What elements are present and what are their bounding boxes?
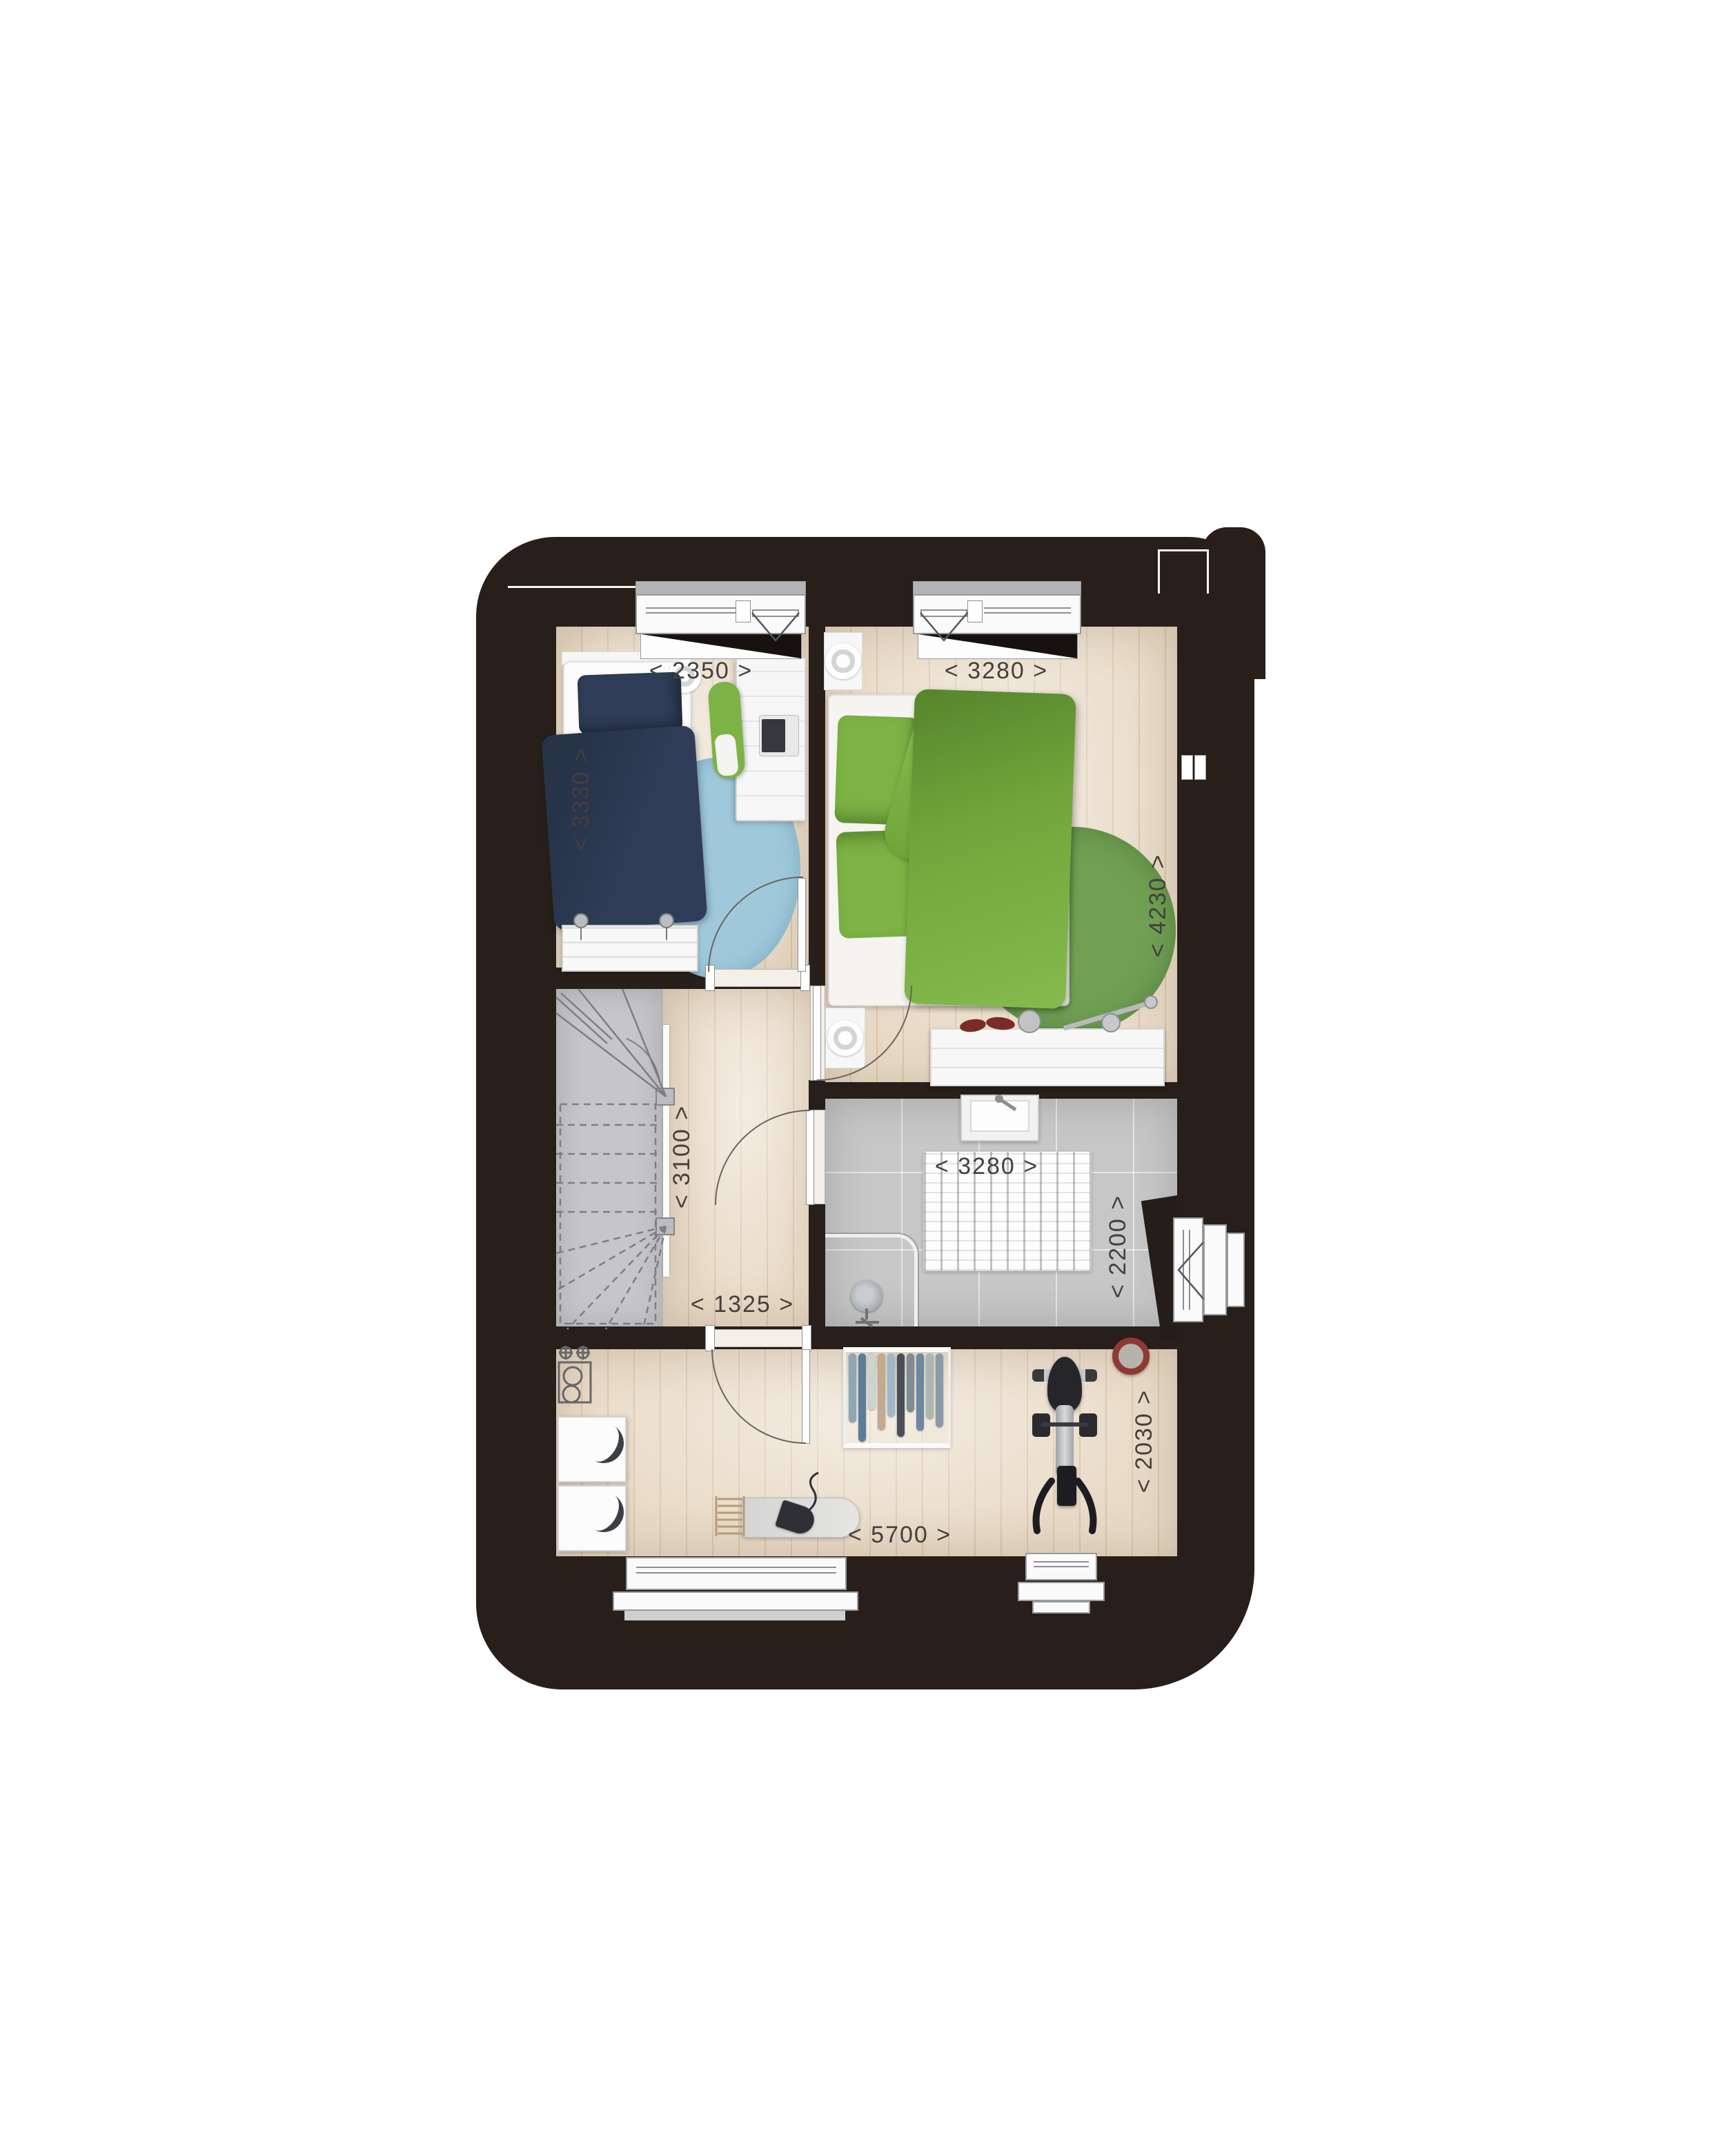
window-opening-arrows	[646, 613, 1203, 1587]
dimension-landing-depth: < 3100 >	[667, 1081, 697, 1233]
dimension-bedroom2-depth: < 4230 >	[1143, 830, 1173, 981]
linework-overlay	[0, 0, 1725, 2156]
dimension-bedroom1-depth: < 3330 >	[566, 723, 596, 875]
dimension-bedroom2-width: < 3280 >	[920, 656, 1072, 686]
dimension-landing-width: < 1325 >	[667, 1289, 818, 1320]
dimension-bedroom1-width: < 2350 >	[625, 656, 777, 686]
dimension-laundry-depth: < 2030 >	[1129, 1365, 1159, 1517]
floor-plan: < 2350 > < 3280 > < 3330 > < 4230 > < 31…	[0, 0, 1725, 2156]
dimension-laundry-width: < 5700 >	[824, 1520, 976, 1550]
dimension-bathroom-depth: < 2200 >	[1103, 1170, 1133, 1322]
dimension-bathroom-width: < 3280 >	[911, 1151, 1063, 1182]
